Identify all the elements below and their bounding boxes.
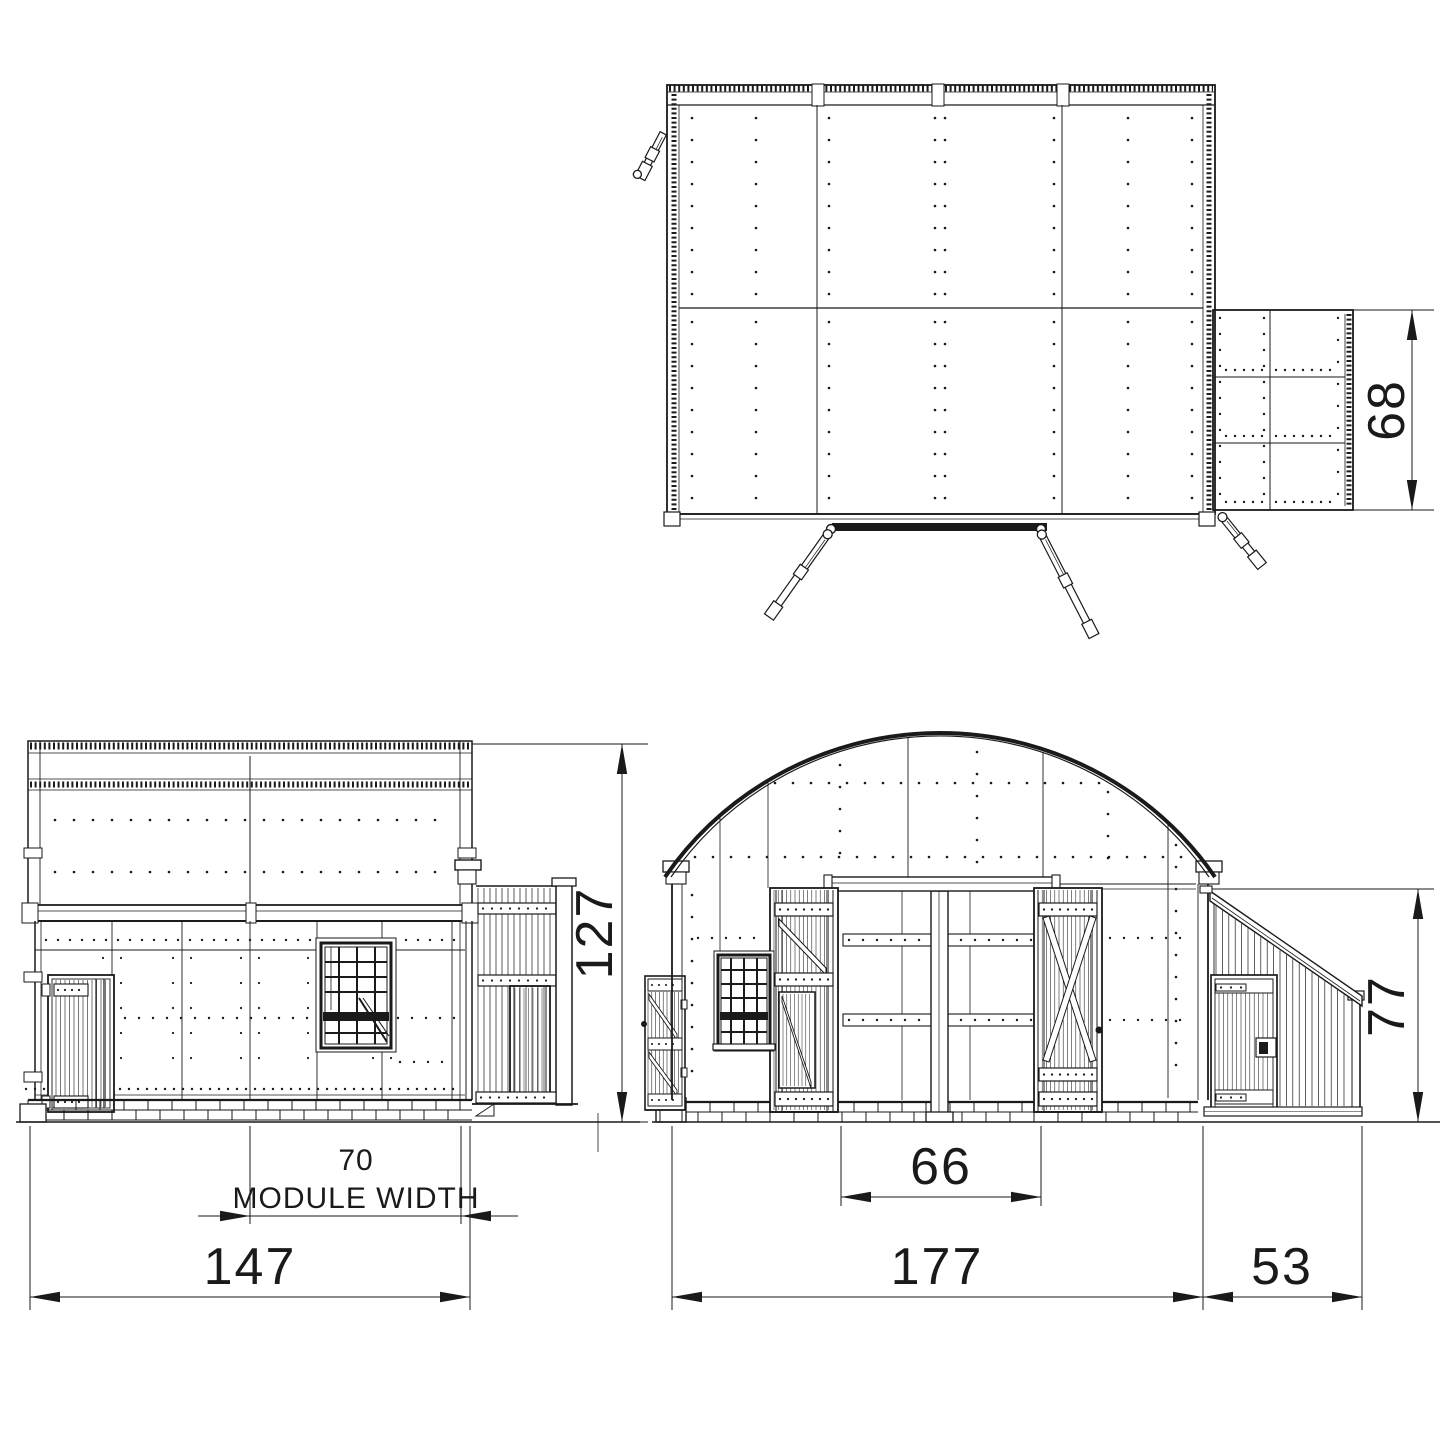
dim-side-total-width: 147	[204, 1238, 297, 1296]
dim-front-door-opening: 66	[910, 1138, 972, 1196]
dim-front-annex-width: 53	[1251, 1238, 1313, 1296]
dim-module-width-value: 70	[338, 1144, 373, 1177]
dim-plan-annex-depth: 68	[1358, 379, 1416, 441]
side-elevation	[16, 741, 640, 1152]
drawing-sheet: 68 127 70 MODULE WIDTH 147 66 177 53 77	[0, 0, 1445, 1445]
dim-front-hut-width: 177	[891, 1238, 984, 1296]
technical-drawing: 68 127 70 MODULE WIDTH 147 66 177 53 77	[0, 0, 1445, 1445]
dimension-labels: 68 127 70 MODULE WIDTH 147 66 177 53 77	[204, 379, 1416, 1296]
dim-side-total-height: 127	[566, 887, 624, 980]
front-elevation	[642, 733, 1441, 1122]
dim-module-width-label: MODULE WIDTH	[233, 1182, 480, 1215]
dim-front-annex-height: 77	[1358, 975, 1416, 1037]
plan-view	[632, 84, 1353, 639]
